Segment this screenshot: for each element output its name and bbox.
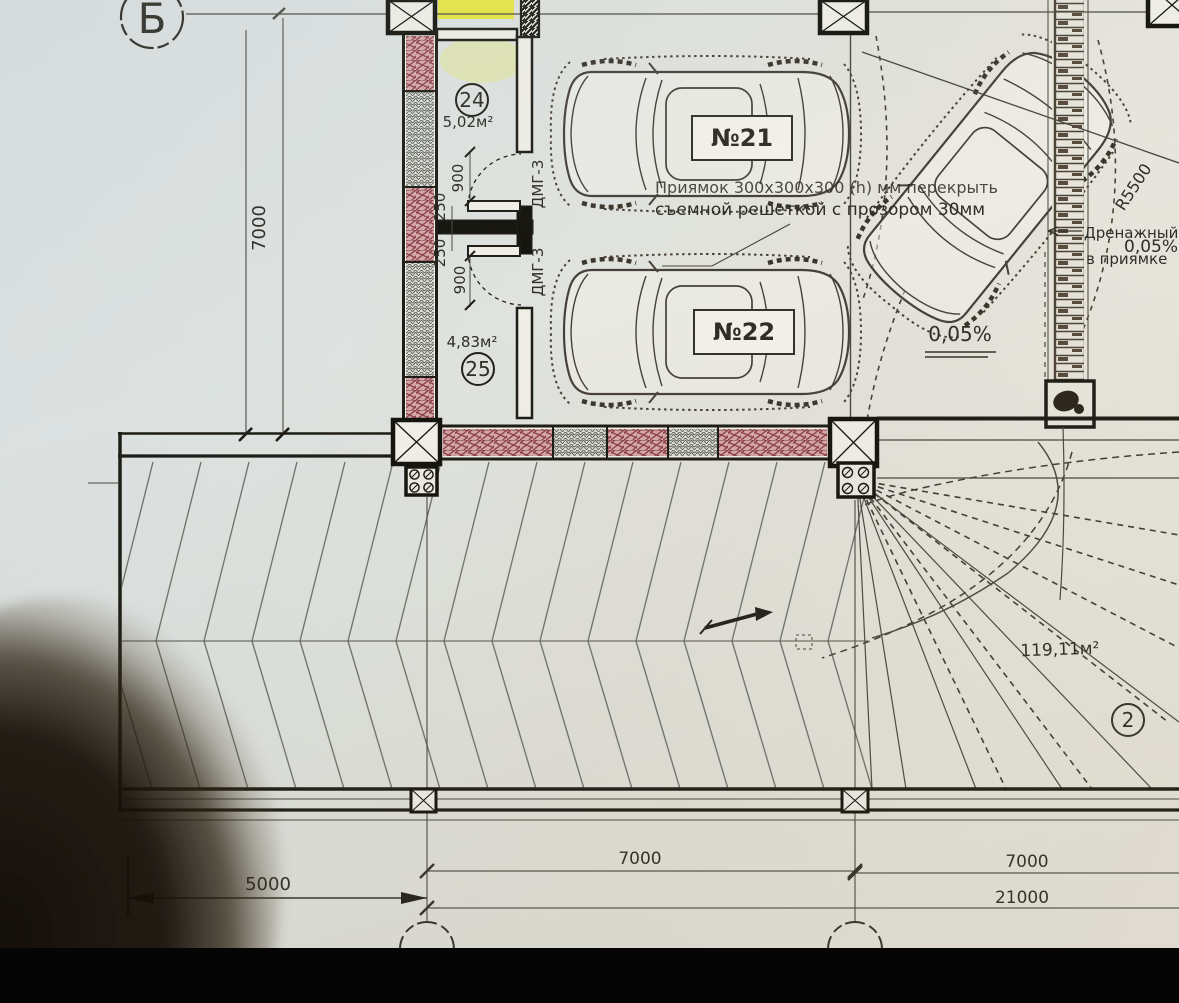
dim-door1-900: 900 xyxy=(449,164,467,193)
dim-door2-900: 900 xyxy=(451,266,469,295)
footing-right xyxy=(838,463,874,497)
column-mid-right xyxy=(830,419,877,466)
dim-7000-bottom-left: 7000 xyxy=(618,849,661,869)
letterbox-bottom xyxy=(0,948,1179,1003)
dim-door1-250: 250 xyxy=(431,193,449,222)
wall-left-band xyxy=(404,33,437,425)
column-top-right xyxy=(1148,0,1179,26)
dim-21000: 21000 xyxy=(995,888,1049,908)
door1-type-label: ДМГ-3 xyxy=(529,160,547,209)
axis-2-marker: 2 xyxy=(1122,708,1135,732)
pit-note-line1: Приямок 300х300х300 (h) мм перекрыть xyxy=(655,178,998,197)
room24-number: 24 xyxy=(459,88,484,112)
dim-vertical-7000: 7000 xyxy=(239,18,289,441)
ramp-area-label: 119,11м² xyxy=(1020,639,1100,662)
room25-area: 4,83м² xyxy=(447,333,498,351)
drain-note-line2: в приямке xyxy=(1086,250,1167,268)
column-mid-left xyxy=(393,420,440,464)
bottom-dimension-texts: 5000 7000 7000 21000 xyxy=(245,849,1049,908)
dim-text-7000-left: 7000 xyxy=(249,205,270,251)
photo-of-floor-plan: 7000 xyxy=(0,0,1179,1003)
door-1 xyxy=(468,154,521,211)
door-2 xyxy=(468,246,521,305)
room24-area: 5,02м² xyxy=(443,113,494,131)
footing-left xyxy=(406,467,437,495)
axis-b-marker: Б xyxy=(121,0,183,48)
axis-b-letter: Б xyxy=(138,0,167,43)
column-top-left xyxy=(388,0,435,33)
wall-middle-band xyxy=(440,426,830,459)
pit-note-line2: съемной решеткой с прозором 30мм xyxy=(655,200,985,220)
column-bottom-left xyxy=(411,789,436,812)
dim-7000-bottom-right: 7000 xyxy=(1005,852,1048,872)
yellow-highlight xyxy=(438,0,524,83)
space-21-label: №21 xyxy=(711,124,773,152)
radius-label: R5500 xyxy=(1111,160,1155,214)
dim-door2-250: 250 xyxy=(431,239,449,268)
slope-label: 0,05% xyxy=(928,322,992,346)
column-top-mid xyxy=(820,0,867,33)
space-22-label: №22 xyxy=(713,318,775,346)
column-bottom-right xyxy=(842,789,868,812)
door2-type-label: ДМГ-3 xyxy=(529,248,547,297)
room25-number: 25 xyxy=(465,357,490,381)
parking-labels: №21 №22 xyxy=(692,116,794,354)
